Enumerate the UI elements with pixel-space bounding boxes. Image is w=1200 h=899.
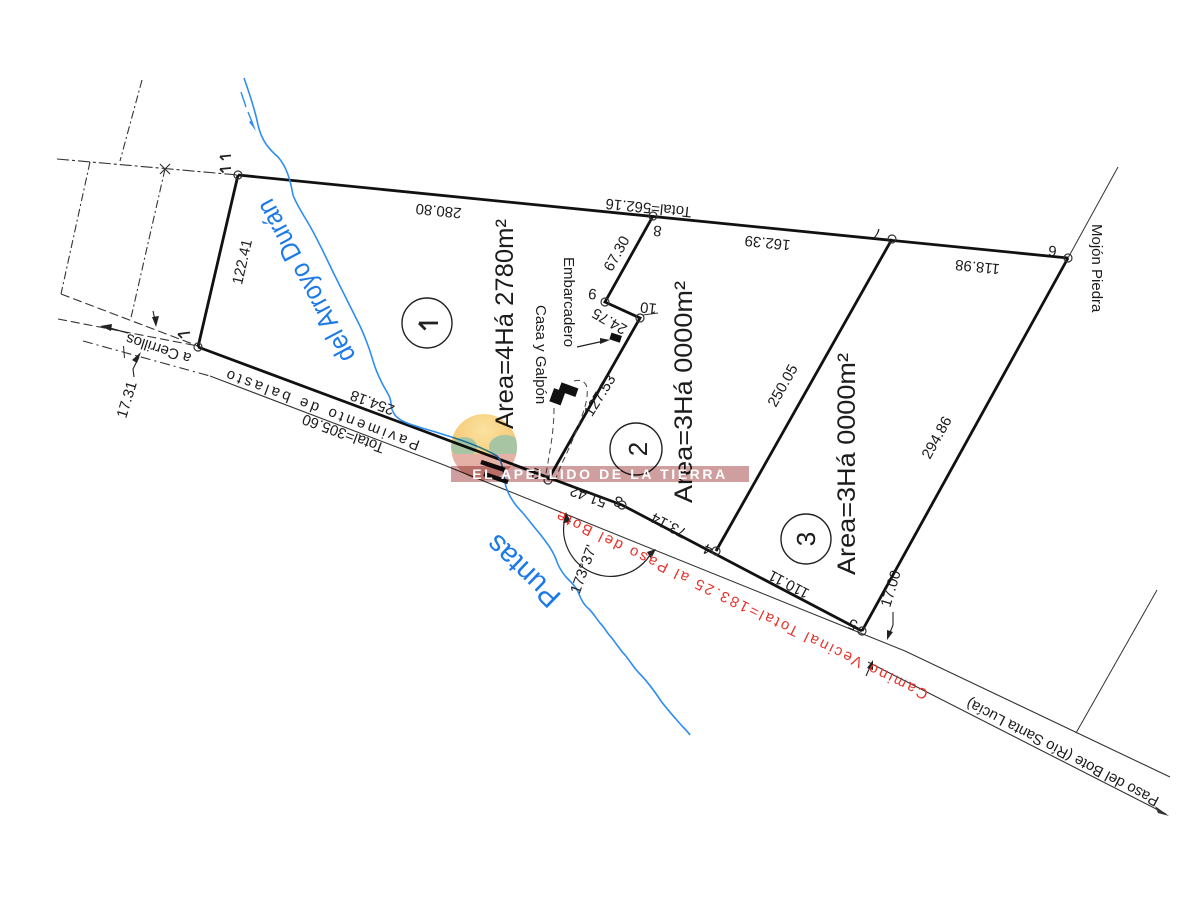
svg-text:Area=3Há 0000m²: Area=3Há 0000m² <box>833 353 861 575</box>
svg-text:9: 9 <box>587 285 597 303</box>
svg-text:7: 7 <box>872 225 882 243</box>
svg-text:Casa y Galpón: Casa y Galpón <box>532 305 549 404</box>
svg-text:3: 3 <box>791 532 821 546</box>
svg-text:10: 10 <box>639 298 657 317</box>
svg-text:8: 8 <box>652 222 662 240</box>
svg-text:2: 2 <box>623 442 653 456</box>
svg-text:6: 6 <box>1047 242 1057 260</box>
svg-text:EL APELLIDO DE LA TIERRA: EL APELLIDO DE LA TIERRA <box>472 466 728 482</box>
svg-text:Embarcadero: Embarcadero <box>560 257 577 347</box>
svg-text:Mojón Piedra: Mojón Piedra <box>1088 224 1105 313</box>
svg-text:Area=4Há 2780m²: Area=4Há 2780m² <box>491 219 519 429</box>
